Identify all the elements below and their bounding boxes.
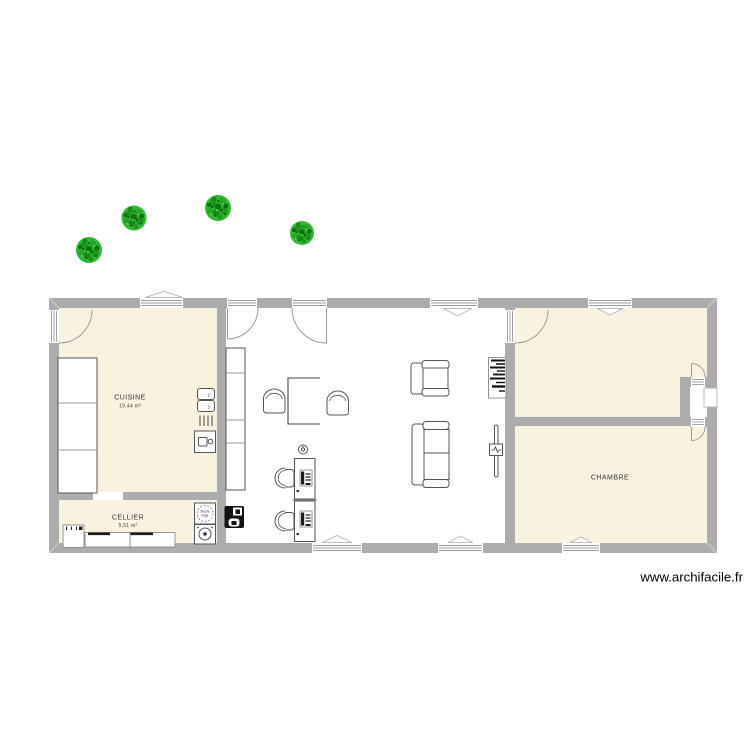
chair-icon — [264, 389, 286, 413]
oven-icon — [195, 431, 216, 453]
room-upper-right — [515, 308, 707, 417]
tree-icon — [76, 237, 102, 263]
floor-plan: Sèche linge — [0, 0, 750, 750]
clock-icon — [299, 445, 308, 454]
window-cuisine-top — [140, 292, 183, 309]
cellier-shelf-unit — [63, 525, 84, 548]
bookshelf-icon — [489, 358, 507, 399]
monitor-icon — [300, 470, 312, 486]
watermark: www.archifacile.fr — [639, 570, 743, 585]
tree-icon — [205, 195, 231, 221]
room-chambre — [515, 426, 707, 543]
dryer-label-2: linge — [201, 514, 208, 518]
sink-icon — [198, 389, 215, 412]
living-cabinet-run — [226, 348, 245, 490]
wall-cuisine-cellier-right — [123, 492, 217, 500]
dryer-icon: Sèche linge — [195, 503, 216, 524]
room-area-cellier: 5,51 m² — [119, 523, 138, 529]
kitchen-cabinet-run — [58, 358, 97, 493]
desk-2 — [295, 501, 316, 542]
wall-right-rooms — [505, 417, 680, 426]
desk-1 — [295, 459, 316, 500]
room-label-chambre: CHAMBRE — [591, 475, 629, 482]
desk-chair-icon — [275, 511, 294, 531]
opening-right-wall — [704, 388, 717, 407]
washer-icon — [195, 525, 216, 545]
armchair-icon — [411, 361, 449, 397]
chair-icon — [327, 391, 349, 415]
window-icon — [145, 292, 183, 298]
monitor-icon — [300, 511, 312, 527]
sofa-icon — [412, 422, 449, 488]
room-area-cuisine: 19,44 m² — [119, 404, 141, 410]
boiler-icon — [225, 506, 245, 528]
tree-icon — [290, 221, 314, 245]
floor-plan-canvas: Sèche linge — [0, 0, 750, 750]
wall-right — [707, 308, 717, 543]
trees — [76, 195, 314, 263]
room-label-cellier: CELLIER — [112, 515, 144, 522]
room-label-cuisine: CUISINE — [114, 395, 146, 402]
room-living — [226, 308, 505, 543]
tree-icon — [122, 206, 147, 231]
desk-chair-icon — [275, 468, 294, 488]
wall-niche — [680, 377, 690, 426]
cellier-counter — [85, 533, 175, 548]
